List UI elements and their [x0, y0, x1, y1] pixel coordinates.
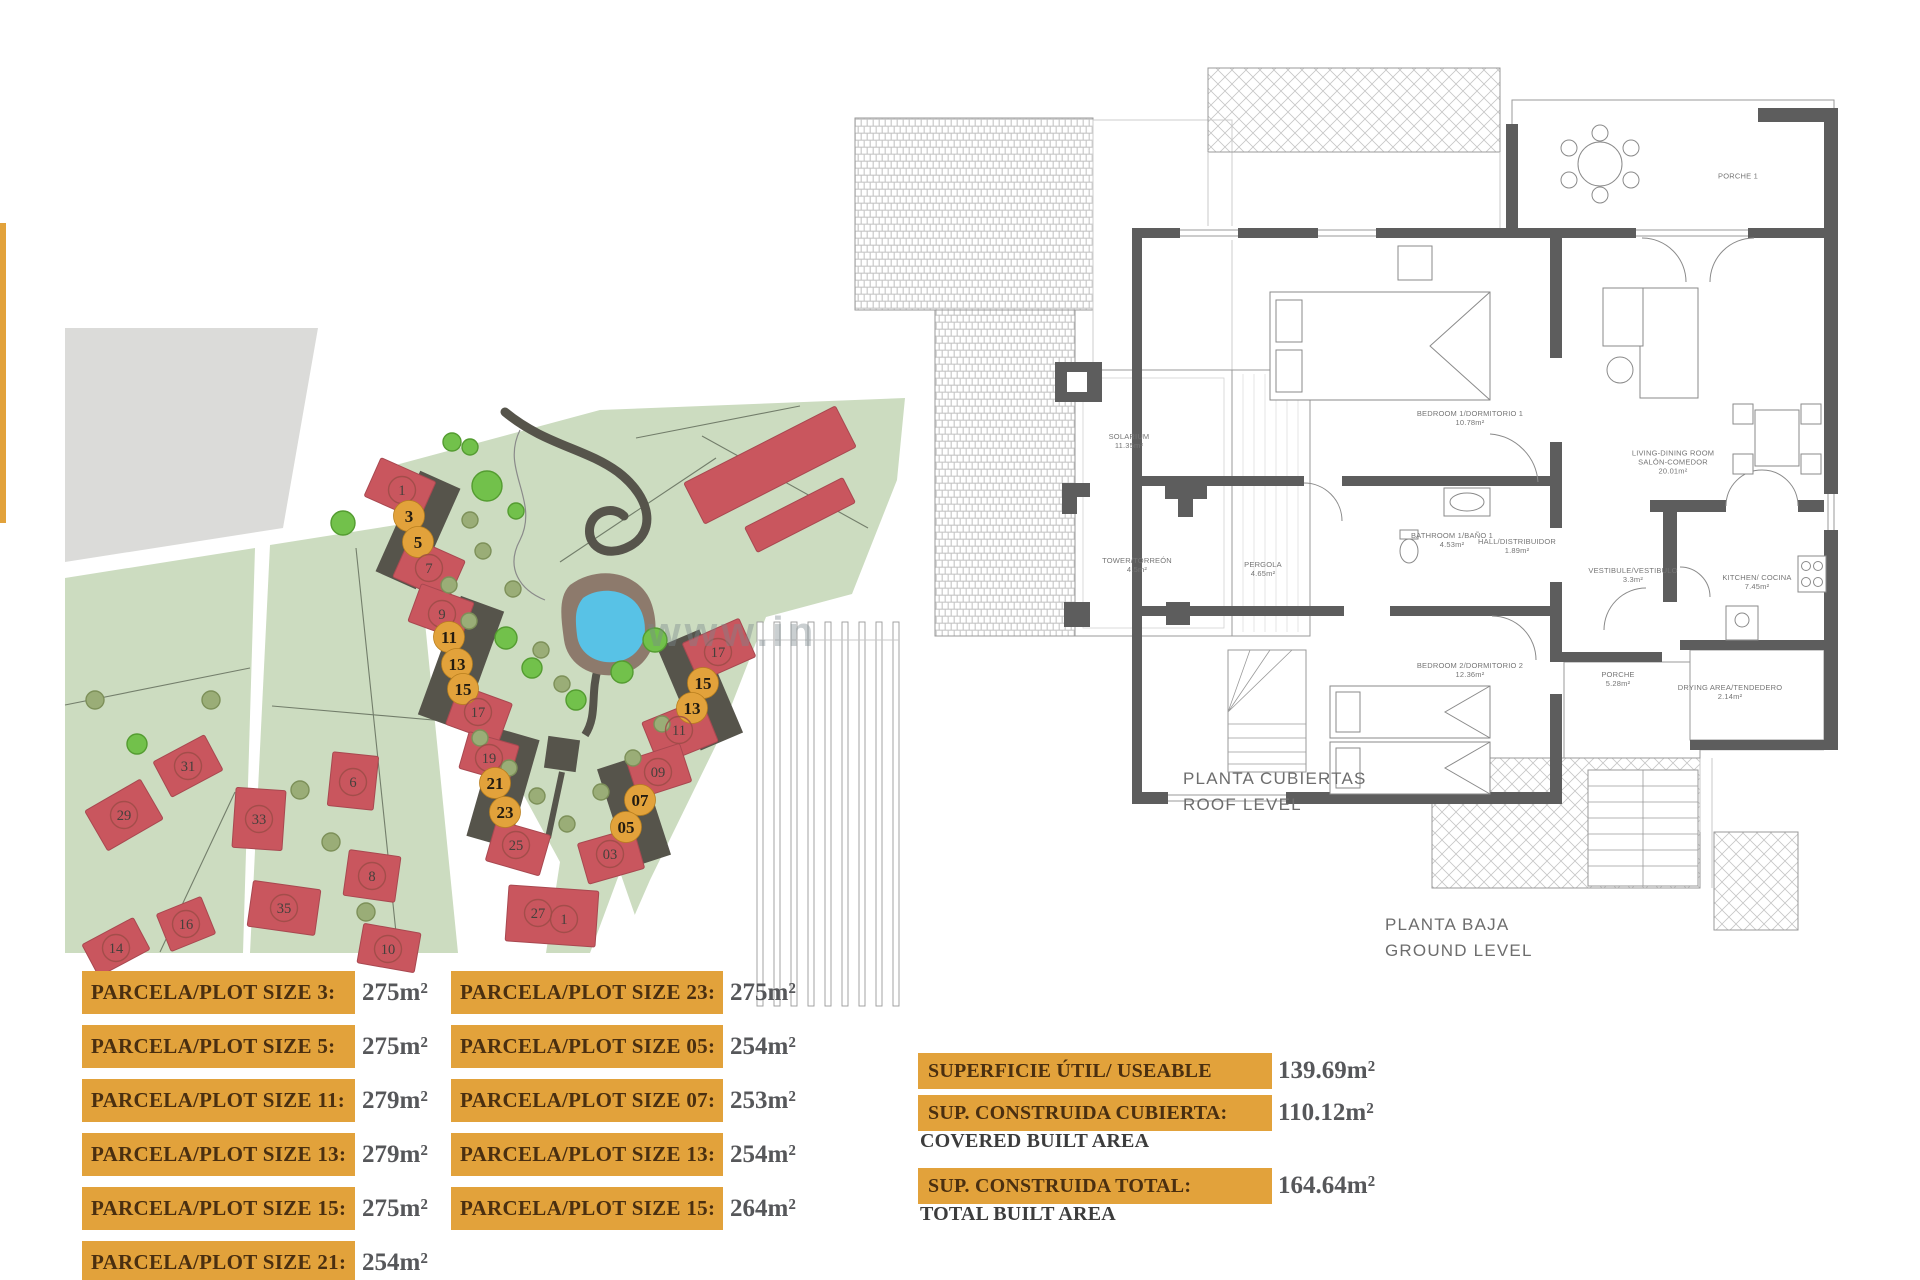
room-label: SOLARIUM 11.35m²	[1109, 432, 1150, 450]
plot-marker-13: 13	[677, 693, 708, 724]
map-tree	[462, 439, 478, 455]
ground-stairs	[1588, 770, 1698, 886]
map-tree	[86, 691, 104, 709]
plot-marker-21: 21	[480, 768, 511, 799]
svg-text:27: 27	[531, 906, 546, 922]
map-tree	[508, 503, 524, 519]
map-tree	[529, 788, 545, 804]
map-tree	[625, 750, 641, 766]
svg-text:21: 21	[487, 774, 504, 793]
map-green-left	[65, 548, 255, 953]
room-label: KITCHEN/ COCINA 7.45m²	[1722, 573, 1791, 591]
plot-size-value: 254m²	[362, 1241, 428, 1280]
svg-text:8: 8	[368, 869, 375, 885]
svg-text:15: 15	[695, 674, 712, 693]
map-tree	[291, 781, 309, 799]
roof-caption-line1: PLANTA CUBIERTAS	[1183, 766, 1367, 792]
plot-size-value: 253m²	[730, 1079, 796, 1122]
svg-text:10: 10	[381, 942, 396, 958]
page: 1357911131517192123252711715131109070503…	[0, 0, 1920, 1280]
plot-size-row: PARCELA/PLOT SIZE 23:275m²	[451, 971, 796, 1014]
plot-size-label: PARCELA/PLOT SIZE 15:	[451, 1187, 723, 1230]
plot-size-label: PARCELA/PLOT SIZE 05:	[451, 1025, 723, 1068]
room-label: BEDROOM 1/DORMITORIO 1 10.78m²	[1417, 409, 1523, 427]
svg-text:23: 23	[497, 803, 514, 822]
plot-size-label: PARCELA/PLOT SIZE 07:	[451, 1079, 723, 1122]
svg-text:07: 07	[632, 791, 650, 810]
plot-size-row: PARCELA/PLOT SIZE 3:275m²	[82, 971, 428, 1014]
room-label: LIVING-DINING ROOM SALÓN-COMEDOR 20.01m²	[1632, 449, 1714, 476]
map-gray-parcel	[65, 328, 318, 562]
map-tree	[593, 784, 609, 800]
plot-size-row: PARCELA/PLOT SIZE 07:253m²	[451, 1079, 796, 1122]
summary-sublabel: COVERED BUILT AREA	[920, 1130, 1149, 1153]
map-tree	[127, 734, 147, 754]
plot-size-row: PARCELA/PLOT SIZE 05:254m²	[451, 1025, 796, 1068]
map-tree	[611, 661, 633, 683]
svg-text:13: 13	[684, 699, 701, 718]
map-tree	[495, 627, 517, 649]
plot-size-label: PARCELA/PLOT SIZE 23:	[451, 971, 723, 1014]
terrace-hatch-top	[1208, 68, 1500, 152]
plot-size-row: PARCELA/PLOT SIZE 11:279m²	[82, 1079, 428, 1122]
svg-text:1: 1	[398, 483, 405, 499]
room-label: PORCHE 5.28m²	[1601, 670, 1634, 688]
watermark: www.in	[648, 608, 817, 656]
svg-text:5: 5	[414, 533, 423, 552]
pergola-area	[1232, 370, 1310, 636]
plot-size-value: 254m²	[730, 1133, 796, 1176]
map-tree	[505, 581, 521, 597]
plot-size-value: 264m²	[730, 1187, 796, 1230]
svg-text:31: 31	[181, 759, 196, 775]
map-tree	[522, 658, 542, 678]
room-label: PORCHE 1	[1718, 172, 1758, 181]
map-tree	[441, 577, 457, 593]
roof-stairs	[1228, 650, 1306, 772]
plot-marker-5: 5	[403, 527, 434, 558]
svg-text:16: 16	[179, 917, 194, 933]
ground-caption-line2: GROUND LEVEL	[1385, 938, 1533, 964]
svg-text:17: 17	[471, 705, 486, 721]
plot-size-label: PARCELA/PLOT SIZE 15:	[82, 1187, 355, 1230]
plot-size-label: PARCELA/PLOT SIZE 5:	[82, 1025, 355, 1068]
map-tree	[533, 642, 549, 658]
map-tree	[322, 833, 340, 851]
map-tree	[475, 543, 491, 559]
plot-size-label: PARCELA/PLOT SIZE 21:	[82, 1241, 355, 1280]
built-area-summary: SUPERFICIE ÚTIL/ USEABLE AREA:139.69m²SU…	[918, 1053, 1388, 1253]
room-label: VESTIBULE/VESTIBULO 3.3m²	[1588, 566, 1677, 584]
map-tree	[357, 903, 375, 921]
plot-size-label: PARCELA/PLOT SIZE 13:	[451, 1133, 723, 1176]
summary-value: 139.69m²	[1278, 1054, 1375, 1088]
svg-text:15: 15	[455, 680, 472, 699]
plot-size-value: 275m²	[730, 971, 796, 1014]
plot-sizes-right-column: PARCELA/PLOT SIZE 23:275m²PARCELA/PLOT S…	[451, 971, 796, 1241]
plot-sizes-left-column: PARCELA/PLOT SIZE 3:275m²PARCELA/PLOT SI…	[82, 971, 428, 1280]
pool	[561, 573, 655, 675]
map-tree	[472, 730, 488, 746]
solarium-area	[1075, 370, 1232, 636]
summary-value: 110.12m²	[1278, 1096, 1374, 1130]
roof-upper-terrace-outline	[1093, 120, 1232, 370]
svg-text:35: 35	[277, 901, 292, 917]
roof-caption-line2: ROOF LEVEL	[1183, 792, 1367, 818]
svg-text:11: 11	[672, 723, 686, 739]
map-tree	[443, 433, 461, 451]
plot-size-label: PARCELA/PLOT SIZE 11:	[82, 1079, 355, 1122]
plot-size-row: PARCELA/PLOT SIZE 13:279m²	[82, 1133, 428, 1176]
room-label: TOWER/TORREÓN 4.5m²	[1102, 556, 1172, 574]
map-tree	[472, 471, 502, 501]
svg-text:33: 33	[252, 812, 267, 828]
roof-plan-caption: PLANTA CUBIERTAS ROOF LEVEL	[1183, 766, 1367, 818]
map-tree	[462, 512, 478, 528]
map-tree	[554, 676, 570, 692]
plot-size-row: PARCELA/PLOT SIZE 15:275m²	[82, 1187, 428, 1230]
terrace-hatch-bottom-right	[1714, 832, 1798, 930]
plot-size-label: PARCELA/PLOT SIZE 3:	[82, 971, 355, 1014]
plot-marker-23: 23	[490, 797, 521, 828]
room-label: PERGOLA 4.65m²	[1244, 560, 1282, 578]
plot-marker-11: 11	[434, 622, 465, 653]
map-tree	[461, 613, 477, 629]
plot-size-value: 275m²	[362, 971, 428, 1014]
svg-text:1: 1	[560, 912, 567, 928]
plot-marker-07: 07	[625, 785, 656, 816]
ground-caption-line1: PLANTA BAJA	[1385, 912, 1533, 938]
svg-text:09: 09	[651, 765, 666, 781]
plot-size-label: PARCELA/PLOT SIZE 13:	[82, 1133, 355, 1176]
summary-value: 164.64m²	[1278, 1169, 1375, 1203]
plot-size-value: 279m²	[362, 1079, 428, 1122]
svg-text:14: 14	[109, 941, 124, 957]
plot-marker-05: 05	[611, 812, 642, 843]
svg-text:19: 19	[482, 751, 497, 767]
summary-label: SUPERFICIE ÚTIL/ USEABLE AREA:	[918, 1053, 1272, 1089]
map-tree	[559, 816, 575, 832]
svg-text:13: 13	[449, 655, 466, 674]
map-tree	[566, 690, 586, 710]
svg-text:6: 6	[349, 775, 356, 791]
map-tree	[331, 511, 355, 535]
roof-tiles-upper	[855, 118, 1093, 310]
svg-text:11: 11	[441, 628, 457, 647]
svg-text:9: 9	[438, 607, 445, 623]
svg-text:05: 05	[618, 818, 635, 837]
svg-text:7: 7	[425, 561, 432, 577]
svg-text:25: 25	[509, 838, 524, 854]
map-tree	[202, 691, 220, 709]
room-label: DRYING AREA/TENDEDERO 2.14m²	[1678, 683, 1783, 701]
summary-label: SUP. CONSTRUIDA CUBIERTA:	[918, 1095, 1272, 1131]
summary-sublabel: TOTAL BUILT AREA	[920, 1203, 1116, 1226]
plot-size-row: PARCELA/PLOT SIZE 13:254m²	[451, 1133, 796, 1176]
room-label: HALL/DISTRIBUIDOR 1.89m²	[1478, 537, 1556, 555]
roof-tiles-lower	[935, 310, 1075, 636]
svg-text:29: 29	[117, 808, 132, 824]
pergola-slats	[757, 622, 899, 1006]
summary-label: SUP. CONSTRUIDA TOTAL:	[918, 1168, 1272, 1204]
plot-size-row: PARCELA/PLOT SIZE 21:254m²	[82, 1241, 428, 1280]
plot-size-value: 254m²	[730, 1025, 796, 1068]
plot-size-row: PARCELA/PLOT SIZE 15:264m²	[451, 1187, 796, 1230]
ground-plan-caption: PLANTA BAJA GROUND LEVEL	[1385, 912, 1533, 964]
plot-size-value: 275m²	[362, 1025, 428, 1068]
plot-size-value: 279m²	[362, 1133, 428, 1176]
svg-text:3: 3	[405, 507, 414, 526]
svg-text:03: 03	[603, 847, 618, 863]
room-label: BEDROOM 2/DORMITORIO 2 12.36m²	[1417, 661, 1523, 679]
plot-size-value: 275m²	[362, 1187, 428, 1230]
map-house	[505, 885, 599, 947]
plot-size-row: PARCELA/PLOT SIZE 5:275m²	[82, 1025, 428, 1068]
